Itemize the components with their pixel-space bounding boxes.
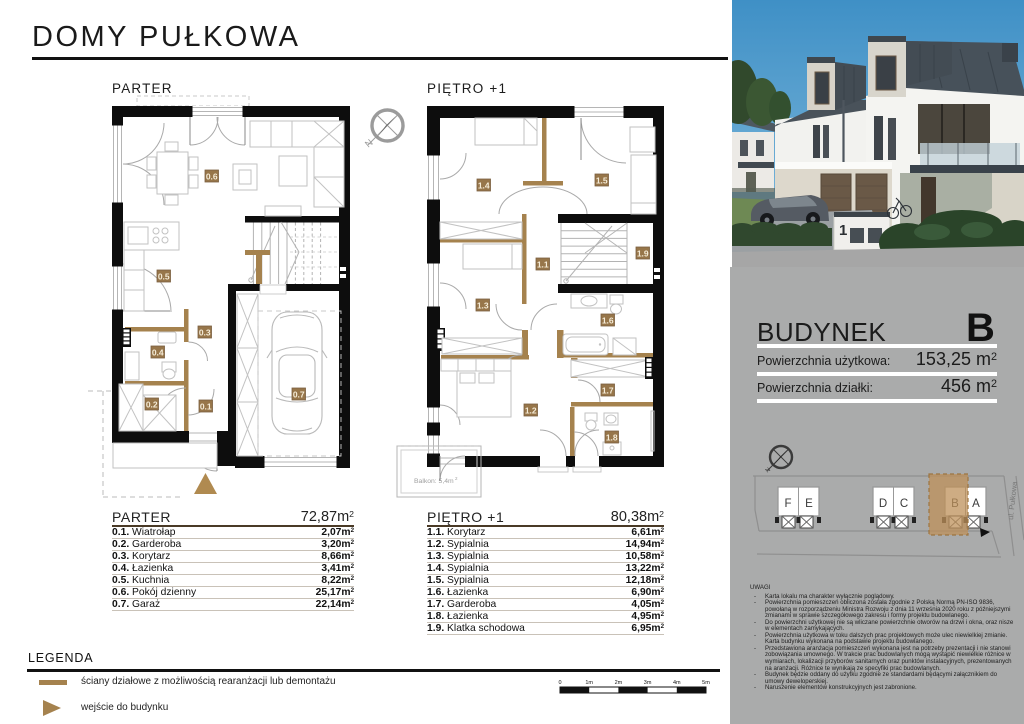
svg-text:3m: 3m: [644, 680, 652, 686]
svg-text:1.6: 1.6: [602, 315, 614, 325]
svg-text:1.4: 1.4: [478, 180, 490, 190]
svg-text:1.8: 1.8: [606, 432, 618, 442]
svg-text:Balkon: 5,4m: Balkon: 5,4m: [414, 478, 454, 485]
svg-text:C: C: [900, 498, 908, 510]
svg-text:1.7: 1.7: [602, 385, 614, 395]
svg-text:0.1: 0.1: [200, 401, 212, 411]
svg-text:1m: 1m: [585, 680, 593, 686]
svg-text:1.1: 1.1: [537, 259, 549, 269]
svg-text:5m: 5m: [702, 680, 710, 686]
svg-text:ul. Pułkowa: ul. Pułkowa: [1006, 480, 1019, 520]
svg-text:1: 1: [839, 222, 847, 239]
svg-text:1.9: 1.9: [637, 248, 649, 258]
svg-text:E: E: [805, 498, 813, 510]
svg-text:2: 2: [455, 476, 458, 481]
svg-text:1.2: 1.2: [525, 405, 537, 415]
svg-text:0.2: 0.2: [146, 399, 158, 409]
svg-text:0.5: 0.5: [158, 271, 170, 281]
svg-text:N: N: [765, 467, 772, 474]
svg-text:1.5: 1.5: [596, 175, 608, 185]
svg-text:0: 0: [558, 680, 561, 686]
svg-text:1.3: 1.3: [477, 300, 489, 310]
svg-text:4m: 4m: [673, 680, 681, 686]
svg-text:A: A: [972, 498, 980, 510]
svg-text:D: D: [879, 498, 887, 510]
svg-text:0.3: 0.3: [199, 327, 211, 337]
svg-text:0.6: 0.6: [206, 171, 218, 181]
svg-text:0.7: 0.7: [293, 389, 305, 399]
svg-text:F: F: [784, 498, 791, 510]
svg-text:0.4: 0.4: [152, 347, 164, 357]
svg-text:2m: 2m: [615, 680, 623, 686]
